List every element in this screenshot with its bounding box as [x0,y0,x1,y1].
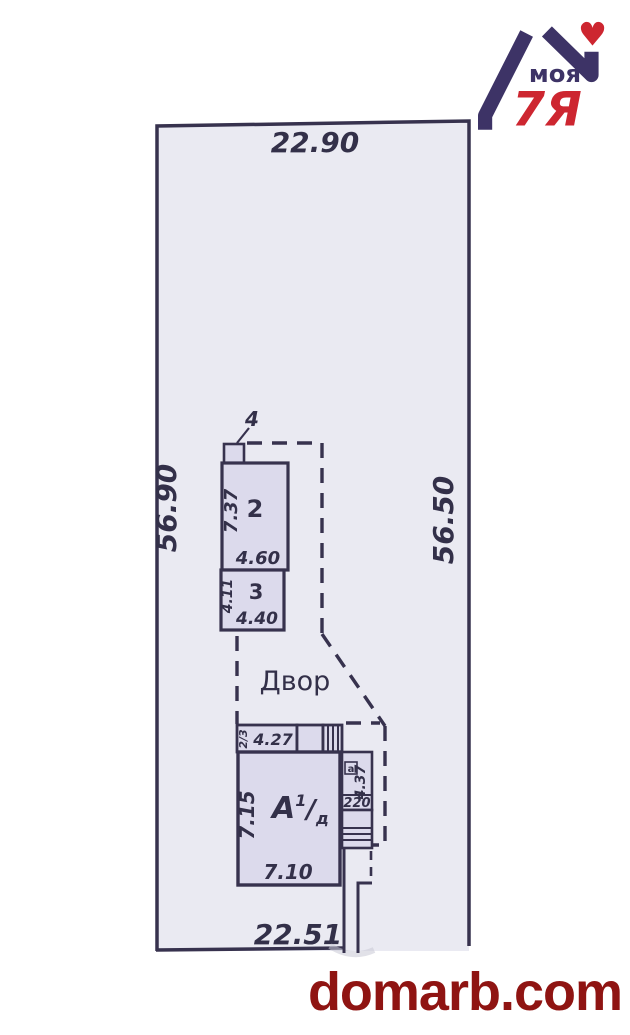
building-3-width: 4.40 [235,609,278,629]
house-label-letter: А [270,791,295,826]
logo-text-bottom: 7Я [512,83,582,138]
dim-plot-left: 56.90 [150,464,183,553]
house-height: 7.15 [235,790,259,839]
porch-4-outline [224,444,244,463]
building-2-width: 4.60 [235,548,280,569]
building-3-label: 3 [249,580,264,604]
site-plan-drawing: 22.90 56.90 56.50 22.51 Двор 4 2 7.37 4.… [0,0,630,965]
house-width: 7.10 [263,860,312,884]
house-label-sup: 1 [295,791,306,810]
watermark-text: domarb.com [0,964,622,1021]
heart-icon: ♥ [578,16,607,54]
dim-plot-bottom: 22.51 [254,918,343,951]
building-2-height: 7.37 [221,488,242,533]
site-plan-image: 22.90 56.90 56.50 22.51 Двор 4 2 7.37 4.… [0,0,630,1035]
yard-label: Двор [260,666,331,697]
agency-logo: моя 7Я ♥ [478,6,630,138]
strip-plain-outline [297,725,323,752]
building-3-height: 4.11 [220,579,236,615]
strip-floor-label: 2/3 [237,729,250,749]
house-label-sub: д [315,809,329,828]
annex-height: 4.37 [353,764,369,800]
dim-plot-top: 22.90 [271,126,360,159]
dim-plot-right: 56.50 [427,476,460,565]
porch-4-label: 4 [244,407,259,431]
strip-width: 4.27 [252,730,293,749]
building-2-label: 2 [247,495,264,523]
